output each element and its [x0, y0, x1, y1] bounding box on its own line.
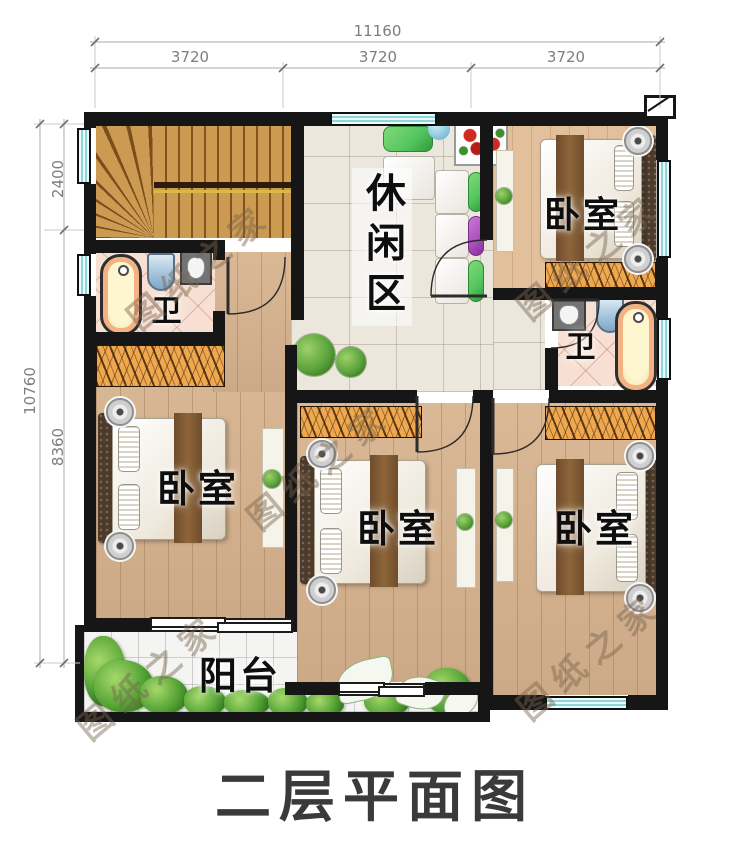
balcony-wall: [75, 712, 490, 722]
room-label-leisure: 休闲区: [352, 168, 412, 326]
sliding-door: [338, 683, 425, 696]
wall: [656, 258, 668, 318]
bedside-stool: [308, 576, 336, 604]
wall: [493, 288, 656, 300]
wall: [213, 311, 225, 332]
bathtub: [100, 254, 142, 336]
wall: [84, 618, 150, 632]
bathtub-faucet: [633, 312, 644, 323]
wall: [291, 126, 304, 320]
bedside-stool: [308, 440, 336, 468]
bedside-stool: [624, 127, 652, 155]
sofa-seat: [435, 214, 469, 258]
window: [77, 254, 91, 296]
dim-top-total: 11160: [320, 22, 435, 40]
room-label-bedroom-tr: 卧室: [508, 186, 658, 238]
potted-plant: [496, 512, 512, 528]
page-title: 二层平面图: [80, 752, 670, 833]
hall-plant: [293, 334, 335, 376]
wall: [84, 112, 96, 128]
sofa-back-cushion-green: [468, 260, 484, 302]
room-label-bath-left: 卫: [138, 286, 198, 330]
bathtub-faucet: [118, 265, 129, 276]
wall: [285, 345, 297, 632]
hall-pocket-b: [493, 300, 545, 390]
bedside-stool: [106, 398, 134, 426]
wall: [84, 240, 225, 253]
toilet-lid: [187, 257, 205, 279]
dim-top-seg-3: 3720: [506, 48, 626, 66]
window: [330, 112, 437, 126]
wall: [297, 390, 417, 403]
flue-box: [644, 95, 676, 119]
wall: [84, 112, 330, 126]
wall: [480, 390, 493, 710]
sliding-door-panel: [217, 622, 293, 633]
bedside-stool: [106, 532, 134, 560]
bathtub: [615, 301, 657, 393]
bedside-stool: [624, 245, 652, 273]
sofa-seat: [435, 170, 469, 214]
wall: [656, 112, 668, 160]
dim-left-total: 10760: [21, 361, 39, 421]
wardrobe-bm: [300, 406, 422, 438]
stair-winder: [96, 126, 154, 238]
stair-rail-trim: [154, 190, 291, 193]
bedside-stool: [626, 442, 654, 470]
room-label-bath-right: 卫: [552, 322, 612, 366]
window: [657, 160, 671, 258]
hall-plant: [336, 347, 366, 377]
room-label-bedroom-bl: 卧室: [118, 458, 278, 513]
wall: [473, 390, 480, 403]
dim-left-seg-1: 2400: [49, 151, 67, 207]
stair-rail: [154, 182, 291, 188]
sofa-seat: [435, 258, 469, 304]
wall: [213, 252, 225, 260]
bedside-stool: [626, 584, 654, 612]
dim-left-seg-2: 8360: [49, 419, 67, 475]
sliding-door: [150, 618, 293, 632]
wall: [480, 112, 493, 240]
dim-top-seg-2: 3720: [318, 48, 438, 66]
wall: [437, 112, 668, 126]
dim-top-seg-1: 3720: [130, 48, 250, 66]
wall: [628, 695, 668, 710]
balcony-wall: [478, 695, 490, 722]
balcony-wall: [75, 625, 84, 722]
toilet: [180, 251, 212, 285]
wardrobe-br: [545, 406, 656, 440]
wall: [84, 332, 225, 345]
floor-plan-canvas: 11160 3720 3720 3720 10760 2400 8360 休闲区…: [0, 0, 750, 841]
wardrobe-bl: [96, 345, 225, 387]
sliding-door-panel: [378, 686, 425, 697]
sofa-lounge-cushion: [383, 126, 433, 152]
room-label-bedroom-br: 卧室: [520, 498, 670, 553]
window: [77, 128, 91, 184]
window: [657, 318, 671, 380]
wall: [84, 296, 96, 632]
wall: [549, 390, 668, 403]
sliding-door-panel: [150, 617, 226, 628]
window: [545, 696, 628, 710]
room-label-balcony: 阳台: [175, 645, 305, 700]
wall: [425, 682, 480, 695]
room-label-bedroom-bm: 卧室: [318, 498, 478, 553]
